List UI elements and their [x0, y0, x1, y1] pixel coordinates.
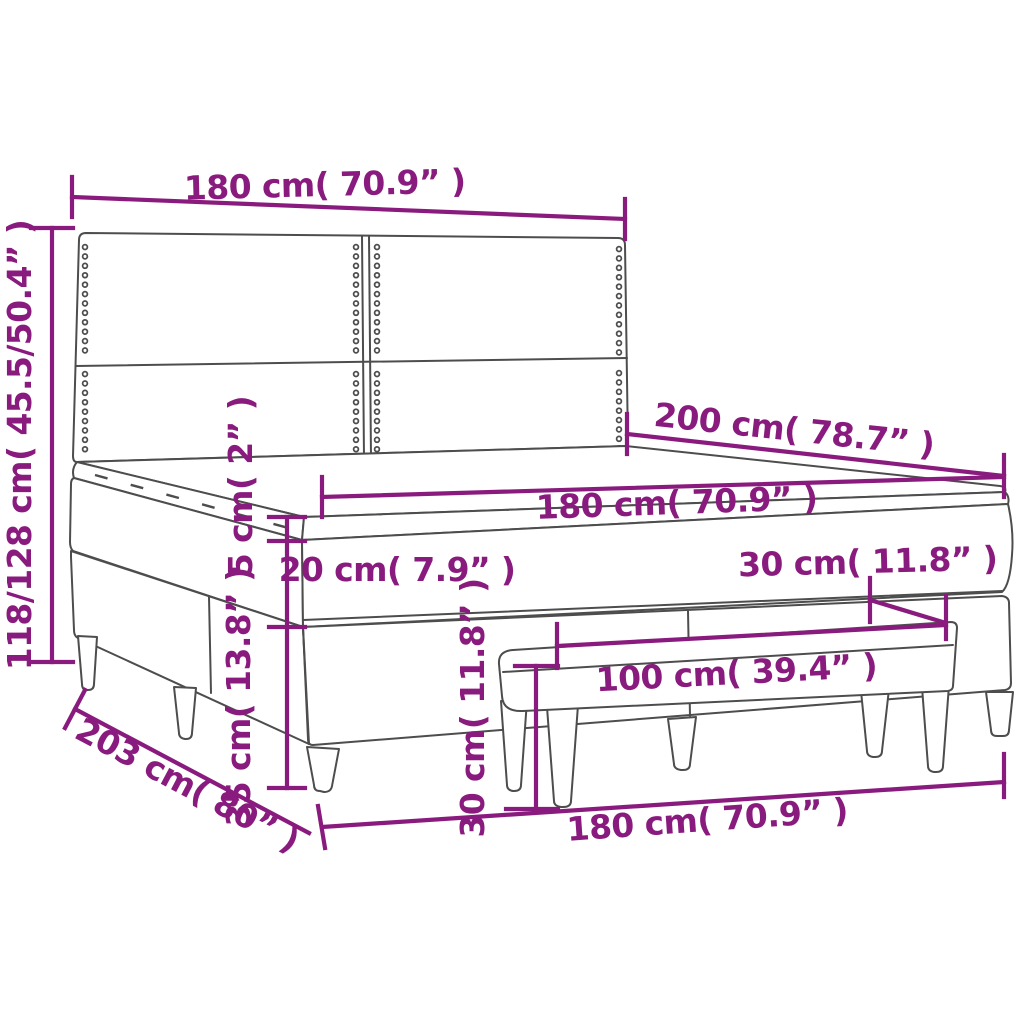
bench-leg: [922, 685, 949, 772]
bed-leg: [986, 692, 1013, 736]
bed-leg: [174, 687, 196, 739]
dim-bench-height-label: 30 cm( 11.8” ): [453, 578, 492, 837]
dim-headboard-height: 118/128 cm( 45.5/50.4” ): [0, 220, 73, 671]
dim-headboard-height-label: 118/128 cm( 45.5/50.4” ): [0, 220, 39, 671]
dim-frame-width-label: 180 cm( 70.9” ): [565, 790, 849, 849]
diagram-canvas: 180 cm( 70.9” ) 118/128 cm( 45.5/50.4” )…: [0, 0, 1024, 1024]
bed-leg: [307, 747, 339, 792]
dim-bench-depth-label: 30 cm( 11.8” ): [738, 539, 998, 585]
dim-headboard-width: 180 cm( 70.9” ): [72, 161, 625, 239]
bed-leg: [78, 636, 97, 690]
bench-leg: [547, 705, 578, 807]
bench-leg: [501, 700, 527, 791]
dim-headboard-width-label: 180 cm( 70.9” ): [183, 161, 466, 207]
dim-topper-height-label: 5 cm( 2” ): [221, 396, 260, 576]
dim-frame-width: 180 cm( 70.9” ): [318, 754, 1004, 849]
bench-leg: [668, 717, 696, 770]
headboard: [73, 233, 628, 462]
bed-dimension-diagram: 180 cm( 70.9” ) 118/128 cm( 45.5/50.4” )…: [0, 0, 1024, 1024]
bench: [499, 622, 957, 807]
bench-leg: [861, 689, 889, 757]
headboard-outline: [73, 233, 628, 462]
